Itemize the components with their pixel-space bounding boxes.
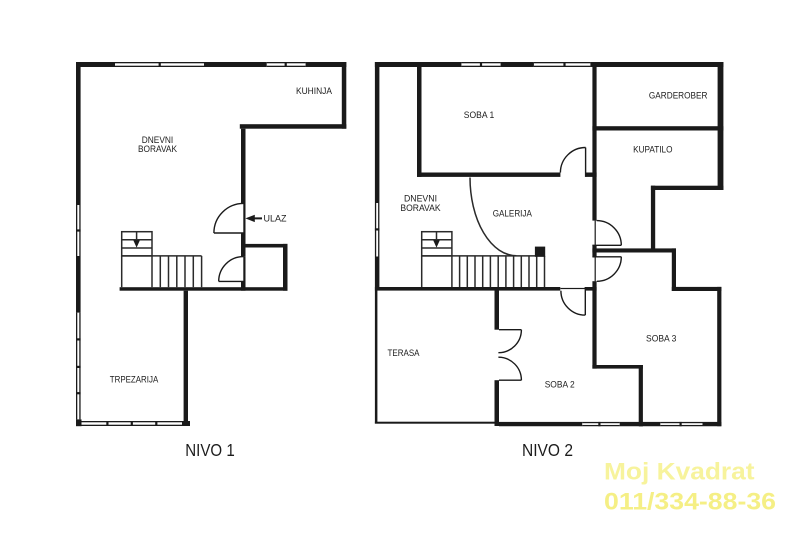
svg-text:Moj Kvadrat: Moj Kvadrat <box>604 459 755 486</box>
svg-text:SOBA 3: SOBA 3 <box>646 334 676 345</box>
svg-text:SOBA 2: SOBA 2 <box>545 380 575 391</box>
svg-text:GALERIJA: GALERIJA <box>493 208 533 219</box>
svg-text:NIVO 2: NIVO 2 <box>522 440 573 460</box>
svg-text:TRPEZARIJA: TRPEZARIJA <box>110 375 159 386</box>
svg-text:GARDEROBER: GARDEROBER <box>649 90 708 101</box>
svg-text:BORAVAK: BORAVAK <box>138 144 178 155</box>
svg-text:KUHINJA: KUHINJA <box>296 86 333 97</box>
svg-text:NIVO 1: NIVO 1 <box>185 440 235 460</box>
svg-text:011/334-88-36: 011/334-88-36 <box>604 488 776 515</box>
svg-text:SOBA 1: SOBA 1 <box>464 110 495 121</box>
svg-text:ULAZ: ULAZ <box>264 214 287 225</box>
svg-text:BORAVAK: BORAVAK <box>400 203 441 214</box>
svg-text:TERASA: TERASA <box>388 348 421 359</box>
svg-text:KUPATILO: KUPATILO <box>633 145 672 156</box>
